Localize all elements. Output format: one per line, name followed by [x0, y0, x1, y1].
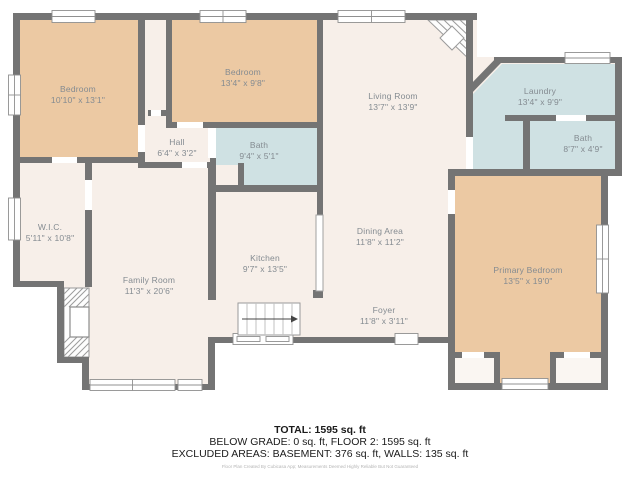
disclaimer-text: Floor Plan Created By Cubicasa App; Meas… — [0, 464, 640, 470]
room-label-primary-bedroom: Primary Bedroom13'5" x 19'0" — [493, 265, 562, 287]
room-label-hall: Hall6'4" x 3'2" — [157, 137, 196, 159]
primary-closet-right-fill — [556, 358, 601, 383]
room-label-family-room: Family Room11'3" x 20'6" — [123, 275, 175, 297]
room-label-kitchen: Kitchen9'7" x 13'5" — [243, 253, 287, 275]
room-label-bath-right: Bath8'7" x 4'9" — [563, 133, 602, 155]
chimney-fireplace — [64, 288, 89, 357]
front-door — [395, 334, 418, 345]
total-area-text: TOTAL: 1595 sq. ft — [0, 424, 640, 436]
room-label-bedroom-2: Bedroom13'4" x 9'8" — [221, 67, 265, 89]
open-passage-marker — [316, 215, 323, 291]
room-label-bedroom-1: Bedroom10'10" x 13'1" — [51, 84, 105, 106]
floor-plan-drawing — [0, 0, 640, 415]
room-label-foyer: Foyer11'8" x 3'11" — [360, 305, 408, 327]
excluded-areas-text: EXCLUDED AREAS: BASEMENT: 376 sq. ft, WA… — [0, 448, 640, 460]
firebox-icon — [70, 307, 89, 337]
primary-closet-left-fill — [455, 358, 494, 383]
room-label-dining-area: Dining Area11'8" x 11'2" — [356, 226, 404, 248]
room-label-laundry: Laundry13'4" x 9'9" — [518, 86, 562, 108]
floor-plan-page: Bedroom10'10" x 13'1" Bedroom13'4" x 9'8… — [0, 0, 640, 480]
room-label-living-room: Living Room13'7" x 13'9" — [368, 91, 417, 113]
area-summary: TOTAL: 1595 sq. ft BELOW GRADE: 0 sq. ft… — [0, 424, 640, 470]
stairs — [238, 303, 300, 335]
room-label-wic: W.I.C.5'11" x 10'8" — [26, 222, 75, 244]
room-label-bath-top: Bath9'4" x 5'1" — [239, 140, 278, 162]
below-grade-text: BELOW GRADE: 0 sq. ft, FLOOR 2: 1595 sq.… — [0, 436, 640, 448]
